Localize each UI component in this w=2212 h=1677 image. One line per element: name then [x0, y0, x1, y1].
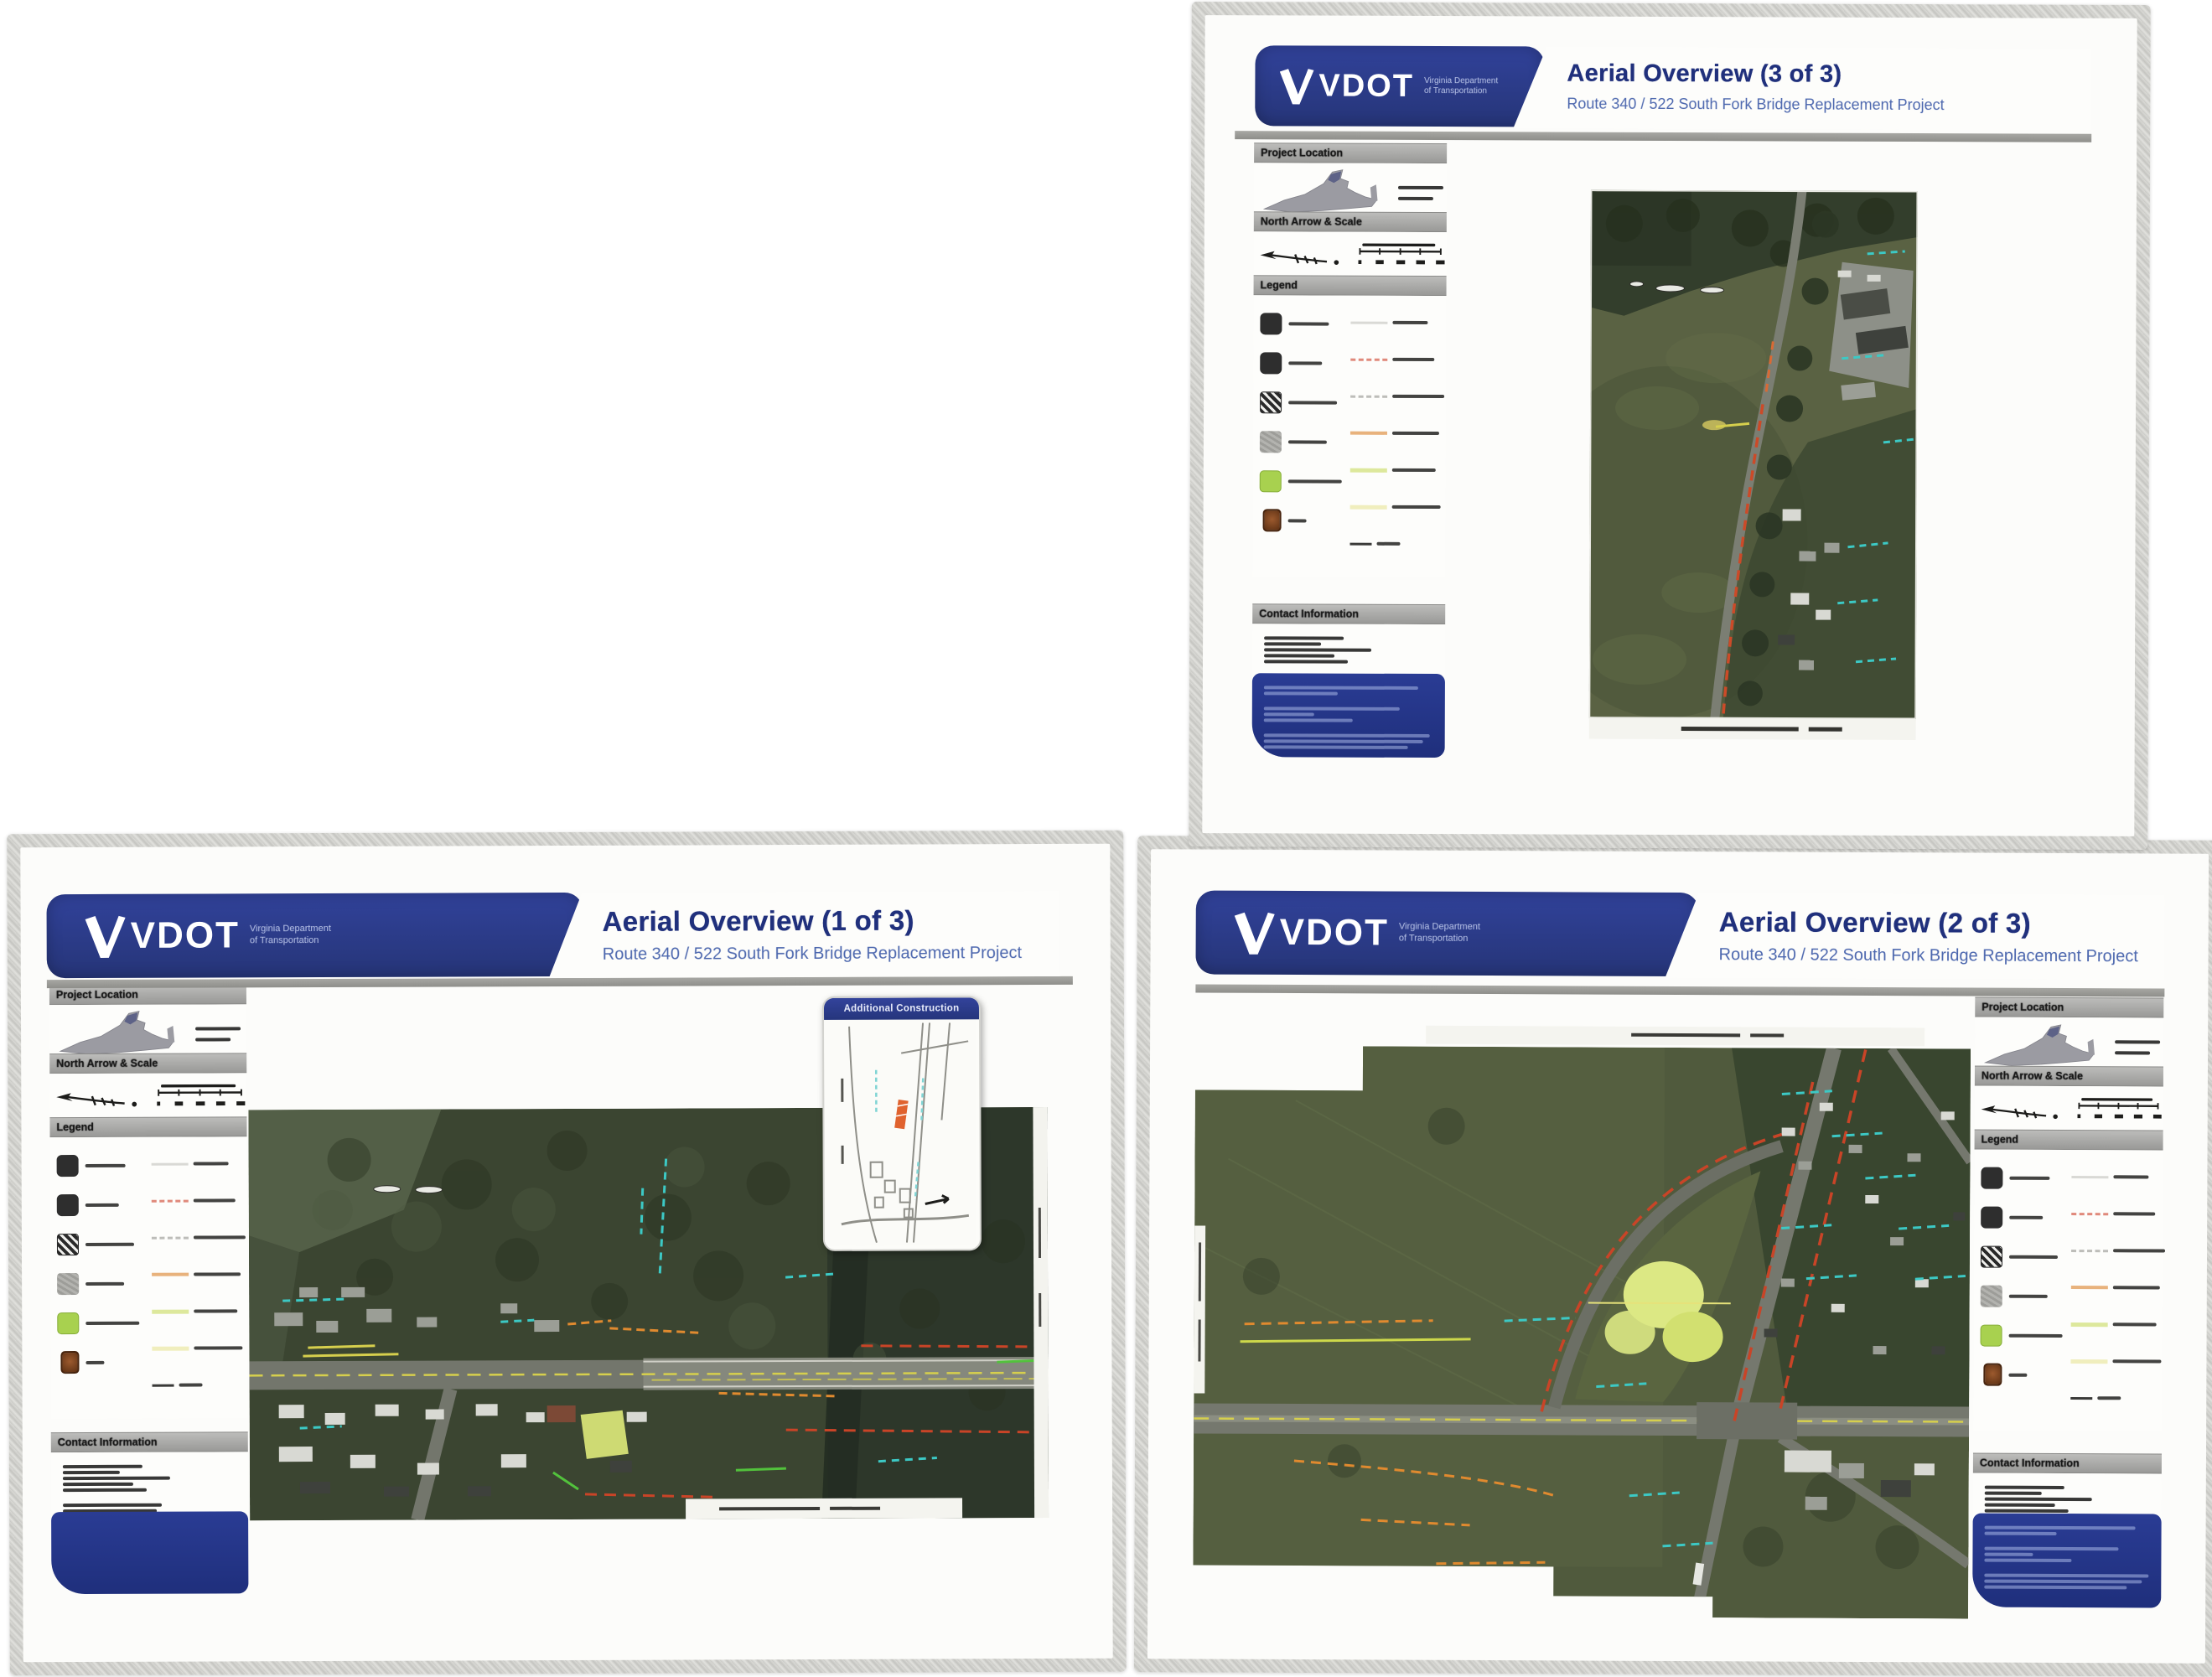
illegible-text-line	[1392, 468, 1436, 472]
page-title: Aerial Overview (2 of 3)	[1719, 906, 2165, 939]
red-dashed-line	[2071, 1213, 2108, 1215]
legend-item	[57, 1343, 143, 1382]
contact-blue-block	[1972, 1514, 2161, 1608]
north-arrow-scale-header: North Arrow & Scale	[1254, 211, 1447, 232]
title-card: Aerial Overview (3 of 3) Route 340 / 522…	[1513, 46, 2091, 130]
illegible-text-line	[1985, 1504, 2055, 1507]
header-divider	[1235, 131, 2091, 142]
project-location-caption	[2115, 1038, 2160, 1057]
green-swatch	[1260, 470, 1282, 492]
north-arrow-scale-body	[1975, 1086, 2163, 1131]
illegible-text-line	[195, 1027, 241, 1030]
north-arrow-icon	[1980, 1098, 2064, 1123]
legend-item	[152, 1219, 246, 1255]
legend-body	[50, 1136, 248, 1419]
page-title: Aerial Overview (3 of 3)	[1567, 60, 2091, 90]
vdot-banner: VDOT Virginia Department of Transportati…	[1195, 890, 1698, 976]
illegible-text-line	[2112, 1359, 2161, 1363]
illegible-text-line	[1264, 733, 1430, 738]
illegible-text-line	[2009, 1294, 2048, 1297]
illegible-text-line	[1264, 686, 1418, 690]
illegible-text-line	[1984, 1574, 2148, 1578]
illegible-text-line	[85, 1321, 139, 1324]
illegible-text-line	[85, 1360, 104, 1364]
illegible-text-line	[1264, 648, 1371, 651]
sheet-3-sidebar: Project Location North Arrow & Scale	[1252, 142, 1447, 693]
sheet-2-page: VDOT Virginia Department of Transportati…	[1147, 849, 2209, 1663]
illegible-text-line	[85, 1281, 124, 1285]
legend-item	[1260, 461, 1342, 500]
illegible-text-line	[1392, 505, 1441, 509]
page-subtitle: Route 340 / 522 South Fork Bridge Replac…	[1719, 945, 2165, 966]
vdot-logo: VDOT	[131, 917, 240, 954]
illegible-text-line	[1392, 358, 1434, 361]
illegible-text-line	[194, 1272, 241, 1276]
illegible-text-line	[1985, 1492, 2042, 1495]
vdot-dept-text: Virginia Department of Transportation	[250, 924, 331, 947]
legend-item	[1981, 1198, 2063, 1237]
illegible-text-line	[85, 1163, 126, 1167]
illegible-text-line	[1985, 1498, 2092, 1502]
illegible-text-line	[63, 1488, 147, 1492]
illegible-text-line	[63, 1465, 142, 1468]
faint-gray-line	[1350, 321, 1387, 323]
orange-line	[1350, 432, 1387, 435]
dark-line	[153, 1384, 174, 1386]
brown-emblem-swatch	[1263, 509, 1282, 531]
illegible-text-line	[195, 1038, 231, 1041]
dark-solid-swatch	[1981, 1206, 2002, 1228]
illegible-text-line	[1985, 1509, 2069, 1513]
legend-item	[1350, 489, 1444, 525]
illegible-text-line	[2009, 1215, 2043, 1219]
hatched-swatch	[57, 1234, 79, 1255]
legend-item	[57, 1264, 143, 1303]
illegible-text-line	[2009, 1333, 2063, 1337]
legend-item	[1350, 341, 1444, 378]
project-location-body	[1975, 1017, 2163, 1067]
gray-textured-swatch	[57, 1273, 79, 1295]
illegible-text-line	[63, 1504, 162, 1507]
illegible-text-line	[1264, 707, 1400, 711]
legend-item	[57, 1224, 143, 1264]
brown-emblem-swatch	[60, 1351, 79, 1374]
legend-item	[57, 1303, 143, 1343]
faint-gray-line	[152, 1162, 189, 1165]
illegible-text-line	[2113, 1322, 2157, 1326]
legend-item	[2070, 1343, 2164, 1379]
sheet-1-page: VDOT Virginia Department of Transportati…	[20, 844, 1112, 1663]
illegible-text-line	[1264, 745, 1408, 749]
illegible-text-line	[1985, 1526, 2136, 1530]
illegible-text-line	[63, 1471, 120, 1474]
yellow-green-line	[1350, 468, 1387, 472]
vdot-dept-text: Virginia Department of Transportation	[1399, 922, 1480, 945]
red-roof	[547, 1405, 576, 1422]
legend-item	[1980, 1316, 2062, 1355]
scale-bar	[2075, 1095, 2161, 1123]
illegible-text-line	[194, 1162, 229, 1165]
illegible-text-line	[1264, 739, 1423, 743]
legend-item	[1350, 452, 1444, 489]
illegible-text-line	[2009, 1176, 2049, 1179]
yellow-green-line	[2071, 1322, 2108, 1327]
yellow-green-line	[152, 1309, 189, 1313]
scale-bar	[1356, 241, 1445, 269]
pale-yellow-line	[2070, 1359, 2107, 1364]
illegible-text-line	[1264, 660, 1348, 663]
illegible-text-line	[1288, 519, 1307, 522]
legend-item	[2071, 1158, 2165, 1195]
vdot-swoosh-icon	[1277, 65, 1313, 106]
project-location-body	[1254, 163, 1447, 212]
north-arrow-icon	[54, 1085, 142, 1110]
illegible-text-line	[1264, 654, 1334, 657]
scale-bar	[154, 1081, 246, 1110]
legend-item	[2070, 1379, 2164, 1416]
legend-item	[1980, 1355, 2062, 1395]
project-location-caption	[1398, 183, 1443, 202]
legend-item	[57, 1185, 143, 1224]
inset-sketch-map	[824, 1019, 976, 1246]
inset-title: Additional Construction	[824, 997, 979, 1020]
green-swatch	[1981, 1324, 2002, 1346]
gray-dashed-line	[152, 1236, 189, 1239]
dark-line	[1350, 542, 1372, 545]
contact-information-header: Contact Information	[1252, 603, 1445, 624]
legend-item	[152, 1255, 246, 1292]
sheet-3: VDOT Virginia Department of Transportati…	[1189, 2, 2151, 850]
north-arrow-scale-header: North Arrow & Scale	[1975, 1066, 2163, 1087]
brown-emblem-swatch	[1983, 1364, 2002, 1386]
illegible-text-line	[2097, 1396, 2121, 1400]
virginia-state-map	[58, 1010, 184, 1059]
illegible-text-line	[1984, 1580, 2142, 1584]
aerial-map-3-svg	[1589, 190, 1918, 740]
illegible-text-line	[194, 1346, 242, 1349]
pale-yellow-line	[152, 1346, 189, 1350]
legend-item	[1981, 1237, 2063, 1276]
illegible-text-line	[194, 1235, 246, 1239]
sheet-2-sidebar: Project Location North Arrow & Scale	[1973, 997, 2164, 1543]
hatched-swatch	[1981, 1245, 2002, 1267]
title-card: Aerial Overview (1 of 3) Route 340 / 522…	[548, 891, 1059, 978]
orange-line	[2071, 1286, 2108, 1289]
legend-header: Legend	[1254, 275, 1447, 296]
legend-item	[152, 1182, 246, 1219]
illegible-text-line	[1264, 718, 1353, 722]
page-title: Aerial Overview (1 of 3)	[603, 904, 1060, 938]
illegible-text-line	[1288, 401, 1337, 404]
legend-header: Legend	[49, 1116, 246, 1137]
vdot-banner: VDOT Virginia Department of Transportati…	[1255, 45, 1544, 127]
illegible-text-line	[1984, 1547, 2118, 1551]
green-swatch	[57, 1312, 79, 1334]
dark-line	[2070, 1397, 2092, 1400]
illegible-text-line	[1984, 1559, 2071, 1562]
legend-item	[1350, 304, 1444, 341]
dark-solid-swatch	[57, 1194, 79, 1216]
vdot-swoosh-icon	[82, 913, 126, 960]
project-location-caption	[195, 1024, 241, 1043]
illegible-text-line	[2115, 1040, 2160, 1043]
pale-yellow-line	[1350, 505, 1387, 509]
north-arrow-icon	[1259, 243, 1344, 268]
legend-item	[1350, 378, 1444, 415]
header-divider	[47, 976, 1073, 988]
illegible-text-line	[179, 1384, 203, 1387]
sidebar-spacer	[1973, 1431, 2162, 1454]
gray-textured-swatch	[1260, 431, 1282, 453]
faint-gray-line	[2071, 1176, 2108, 1178]
red-dashed-line	[152, 1199, 189, 1202]
illegible-text-line	[194, 1198, 236, 1202]
dark-solid-swatch	[57, 1155, 79, 1177]
highlighted-parcel	[581, 1410, 629, 1459]
illegible-text-line	[1264, 636, 1344, 639]
title-card: Aerial Overview (2 of 3) Route 340 / 522…	[1665, 893, 2164, 981]
illegible-text-line	[1288, 361, 1322, 365]
legend-item	[1981, 1276, 2063, 1316]
vdot-dept-text: Virginia Department of Transportation	[1424, 75, 1498, 96]
legend-item	[152, 1366, 246, 1403]
header-divider	[1195, 984, 2164, 996]
north-arrow-scale-body	[1254, 231, 1447, 276]
legend-item	[1260, 343, 1342, 382]
illegible-text-line	[63, 1483, 133, 1486]
illegible-text-line	[1288, 440, 1327, 443]
dark-solid-swatch	[1981, 1167, 2002, 1188]
red-dashed-line	[1350, 358, 1387, 360]
illegible-text-line	[1984, 1586, 2127, 1590]
legend-item	[2071, 1306, 2165, 1343]
dark-solid-swatch	[1260, 313, 1282, 334]
sheet-1: VDOT Virginia Department of Transportati…	[7, 831, 1126, 1676]
virginia-state-map	[1983, 1022, 2103, 1072]
illegible-text-line	[194, 1309, 237, 1312]
illegible-text-line	[1288, 322, 1329, 325]
illegible-text-line	[2113, 1286, 2160, 1289]
illegible-text-line	[1264, 642, 1321, 645]
illegible-text-line	[2113, 1175, 2148, 1178]
orange-line	[152, 1273, 189, 1276]
sheet-2: VDOT Virginia Department of Transportati…	[1134, 836, 2212, 1677]
illegible-text-line	[2113, 1212, 2155, 1215]
north-arrow-scale-body	[49, 1073, 246, 1117]
illegible-text-line	[1985, 1486, 2064, 1489]
illegible-text-line	[1392, 321, 1427, 324]
project-location-header: Project Location	[1975, 997, 2163, 1018]
sidebar-spacer	[51, 1418, 248, 1432]
contact-information-header: Contact Information	[51, 1431, 248, 1452]
legend-body	[1252, 295, 1446, 577]
legend-item	[1349, 525, 1443, 562]
illegible-text-line	[1264, 712, 1314, 716]
virginia-state-map	[1262, 168, 1386, 217]
illegible-text-line	[1392, 432, 1439, 435]
legend-item	[1260, 500, 1342, 540]
sidebar-spacer	[1252, 577, 1445, 604]
legend-item	[1981, 1158, 2063, 1198]
illegible-text-line	[85, 1242, 134, 1245]
aerial-map-3	[1589, 190, 1918, 740]
illegible-text-line	[2009, 1255, 2058, 1258]
vdot-logo: VDOT	[1280, 914, 1389, 952]
additional-construction-inset: Additional Construction	[822, 996, 982, 1251]
legend-item	[2071, 1232, 2165, 1269]
illegible-text-line	[1398, 196, 1433, 199]
legend-item	[57, 1146, 143, 1185]
illegible-text-line	[85, 1203, 119, 1206]
north-arrow-scale-header: North Arrow & Scale	[49, 1053, 246, 1074]
aerial-map-2	[1193, 1024, 1971, 1618]
illegible-text-line	[1984, 1553, 2033, 1556]
legend-item	[2071, 1269, 2165, 1306]
legend-item	[152, 1329, 246, 1366]
illegible-text-line	[1264, 691, 1338, 695]
gray-dashed-line	[1350, 395, 1387, 397]
legend-item	[1260, 422, 1342, 461]
legend-body	[1973, 1150, 2163, 1432]
hatched-swatch	[1260, 391, 1282, 413]
illegible-text-line	[1376, 542, 1400, 546]
contact-text-block	[1264, 636, 1445, 664]
gray-textured-swatch	[1981, 1285, 2002, 1307]
sheet-1-sidebar: Project Location North Arrow & Scale	[49, 984, 248, 1521]
illegible-text-line	[1392, 395, 1444, 398]
vdot-logo: VDOT	[1318, 70, 1414, 102]
gray-dashed-line	[2071, 1250, 2108, 1252]
aerial-map-2-svg	[1193, 1024, 1971, 1618]
legend-item	[1260, 382, 1342, 422]
legend-item	[152, 1145, 246, 1182]
page-subtitle: Route 340 / 522 South Fork Bridge Replac…	[603, 944, 1060, 965]
illegible-text-line	[1398, 185, 1443, 189]
sheet-3-page: VDOT Virginia Department of Transportati…	[1202, 15, 2137, 836]
illegible-text-line	[2008, 1373, 2027, 1376]
page-subtitle: Route 340 / 522 South Fork Bridge Replac…	[1567, 96, 2091, 115]
legend-header: Legend	[1975, 1130, 2163, 1151]
legend-item	[1260, 303, 1342, 343]
contact-text-block	[1985, 1486, 2162, 1514]
contact-blue-block	[51, 1511, 248, 1594]
project-location-body	[49, 1004, 246, 1053]
contact-text-block	[63, 1464, 248, 1492]
legend-item	[1350, 415, 1444, 452]
canvas: { "brand": { "logo_text": "VDOT", "dept_…	[0, 0, 2212, 1654]
project-location-header: Project Location	[1254, 142, 1447, 163]
illegible-text-line	[2115, 1051, 2150, 1054]
vdot-swoosh-icon	[1231, 909, 1275, 956]
contact-information-header: Contact Information	[1973, 1453, 2162, 1474]
vdot-banner: VDOT Virginia Department of Transportati…	[47, 893, 583, 978]
illegible-text-line	[63, 1477, 170, 1480]
illegible-text-line	[2113, 1249, 2165, 1252]
legend-item	[152, 1292, 246, 1329]
illegible-text-line	[1288, 479, 1342, 483]
illegible-text-line	[1985, 1532, 2057, 1535]
dark-solid-swatch	[1260, 352, 1282, 374]
contact-blue-block	[1252, 673, 1445, 758]
intersection	[1697, 1402, 1797, 1440]
legend-item	[2071, 1195, 2165, 1232]
